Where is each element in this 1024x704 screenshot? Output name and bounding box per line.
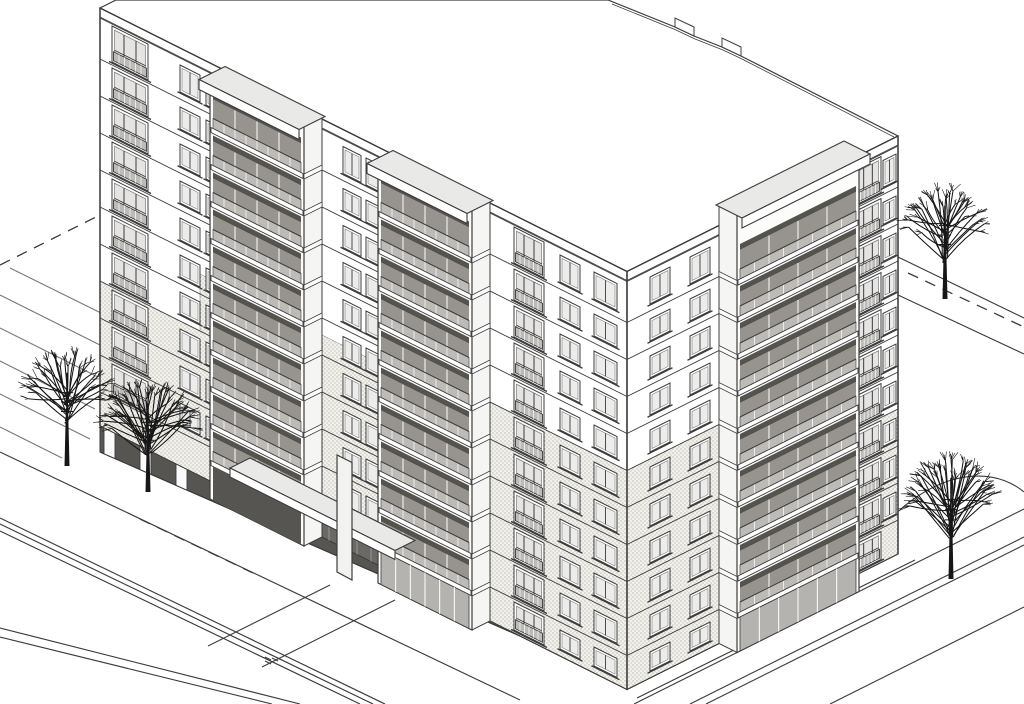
tree: [896, 182, 990, 299]
tree-branch: [36, 393, 66, 419]
road-edge: [0, 628, 300, 704]
architectural-drawing-page: Axonometric architectural line drawing o…: [0, 0, 1024, 704]
tree-twig: [47, 352, 48, 361]
balcony-tower: [367, 151, 493, 631]
walkway-edge: [262, 600, 395, 667]
tree-twig: [19, 386, 26, 388]
tree-twig: [20, 396, 29, 399]
tree-twig: [33, 369, 38, 378]
road-centerline-upper-left: [0, 213, 104, 265]
walkway-edge: [208, 585, 330, 646]
road-edge: [0, 637, 272, 704]
tree-branch: [946, 225, 973, 251]
sidewalk-curb: [0, 531, 360, 704]
balcony-tower-side: [304, 115, 322, 546]
tree-twig: [905, 505, 910, 506]
balcony-tower-side: [472, 199, 490, 630]
tree-twig: [915, 204, 922, 210]
balcony-tower: [716, 141, 870, 653]
sidewalk-curb: [0, 524, 373, 704]
tree-twig: [935, 463, 936, 470]
tree-twig: [953, 184, 961, 191]
road-centerline-back: [908, 273, 1024, 327]
tree: [899, 451, 1002, 579]
tree-twig: [945, 452, 946, 461]
tree-twig: [942, 189, 946, 198]
road-curb-back: [898, 257, 1024, 318]
parking-stripe: [0, 427, 62, 458]
parking-stripe: [0, 295, 100, 345]
road-edge-right: [830, 607, 1024, 704]
tree-twig: [917, 233, 922, 235]
canopy-column: [337, 455, 352, 580]
tree-twig: [981, 492, 987, 493]
road-curb-back: [898, 295, 1024, 354]
parking-stripe: [10, 268, 105, 315]
tree-twig: [980, 231, 989, 234]
pilotis-column: [104, 428, 115, 459]
tree-twig: [984, 500, 992, 502]
axonometric-building-drawing: [0, 0, 1024, 704]
tree-twig: [985, 481, 994, 482]
